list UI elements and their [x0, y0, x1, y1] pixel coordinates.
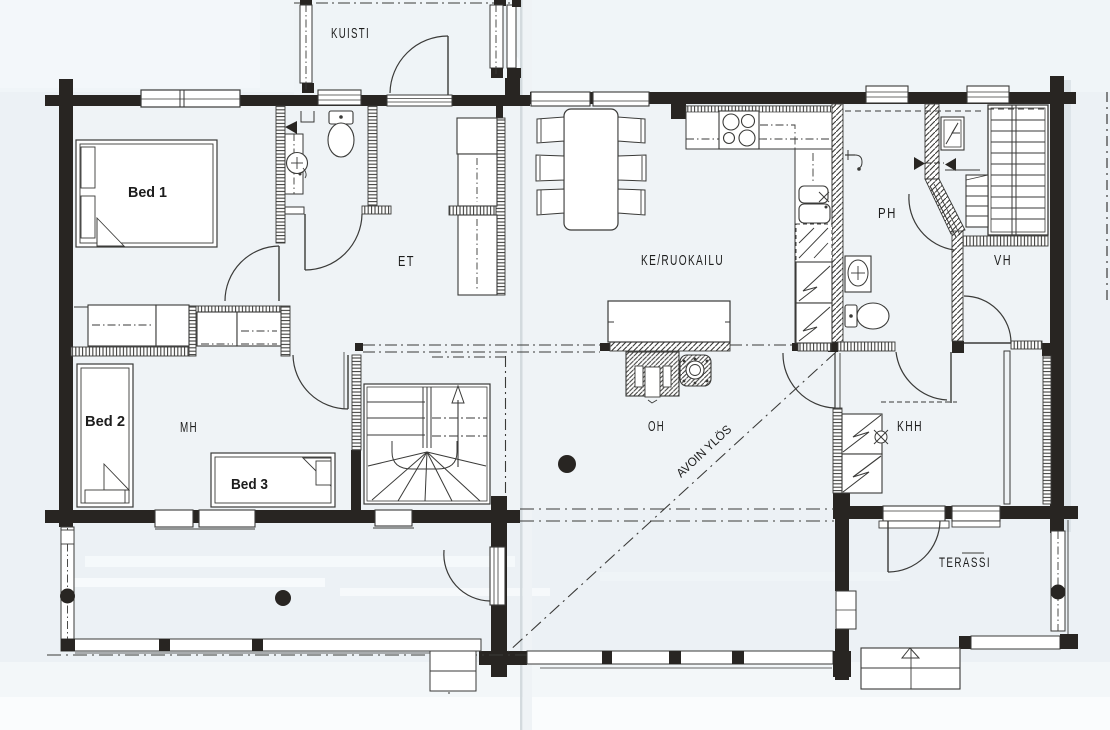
svg-text:Bed 1: Bed 1 [128, 184, 167, 201]
svg-text:Bed 2: Bed 2 [85, 413, 125, 430]
svg-text:ET: ET [398, 253, 415, 270]
svg-text:PH: PH [878, 205, 897, 222]
svg-text:VH: VH [994, 252, 1012, 269]
svg-text:OH: OH [648, 418, 665, 435]
svg-text:KUISTI: KUISTI [331, 25, 370, 42]
svg-text:Bed 3: Bed 3 [231, 476, 268, 493]
svg-text:MH: MH [180, 419, 198, 436]
svg-text:TERASSI: TERASSI [939, 554, 991, 570]
svg-text:KHH: KHH [897, 418, 923, 435]
svg-text:KE/RUOKAILU: KE/RUOKAILU [641, 252, 724, 269]
